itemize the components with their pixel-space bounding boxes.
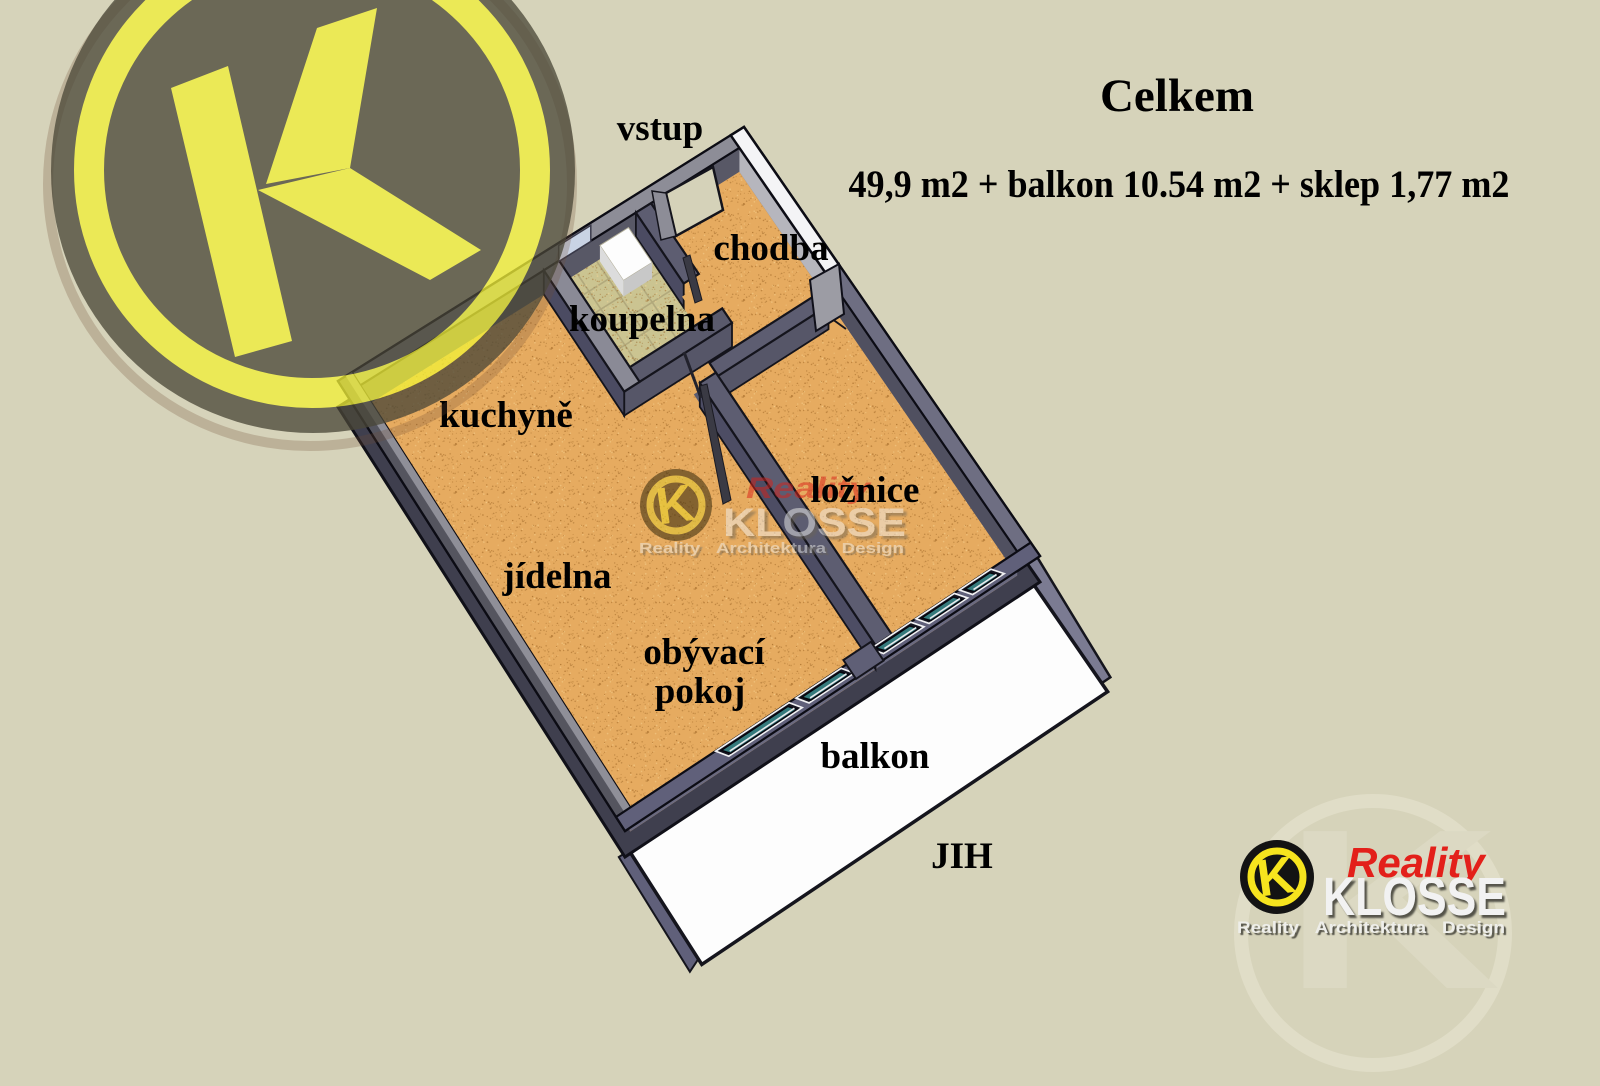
svg-text:chodba: chodba <box>713 228 828 269</box>
svg-text:Reality Architektura Desig: Reality Architektura Design <box>1237 918 1505 937</box>
svg-text:ložnice: ložnice <box>811 470 920 511</box>
svg-text:Reality Architektura Desig: Reality Architektura Design <box>639 540 904 557</box>
svg-text:Celkem: Celkem <box>1100 70 1254 122</box>
svg-text:vstup: vstup <box>617 108 703 149</box>
svg-text:jídelna: jídelna <box>502 556 612 597</box>
svg-text:JIH: JIH <box>931 836 993 877</box>
svg-text:49,9 m2 + balkon 10.54 m2 + sk: 49,9 m2 + balkon 10.54 m2 + sklep 1,77 m… <box>849 163 1510 206</box>
svg-text:balkon: balkon <box>820 736 929 777</box>
svg-text:pokoj: pokoj <box>655 671 745 712</box>
svg-text:koupelna: koupelna <box>569 299 715 340</box>
svg-text:obývací: obývací <box>643 632 765 673</box>
